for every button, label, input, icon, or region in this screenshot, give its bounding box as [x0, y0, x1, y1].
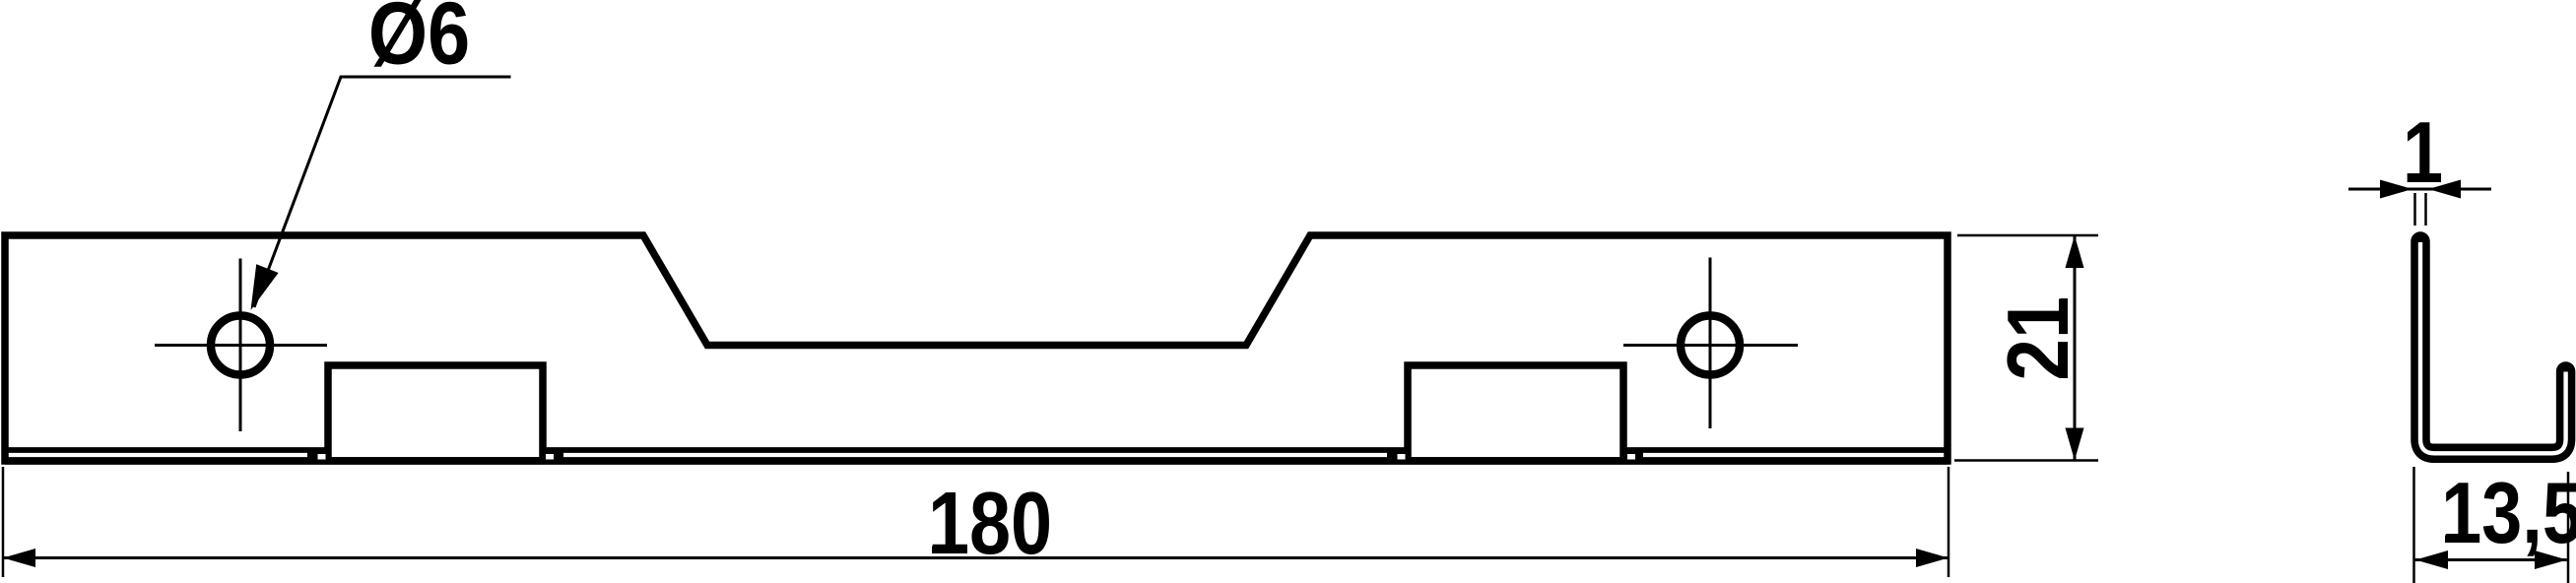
svg-text:Ø6: Ø6	[368, 0, 470, 83]
svg-text:180: 180	[928, 474, 1052, 573]
svg-text:1: 1	[2403, 104, 2443, 202]
svg-text:21: 21	[1990, 296, 2086, 380]
svg-text:13,5: 13,5	[2441, 465, 2576, 562]
